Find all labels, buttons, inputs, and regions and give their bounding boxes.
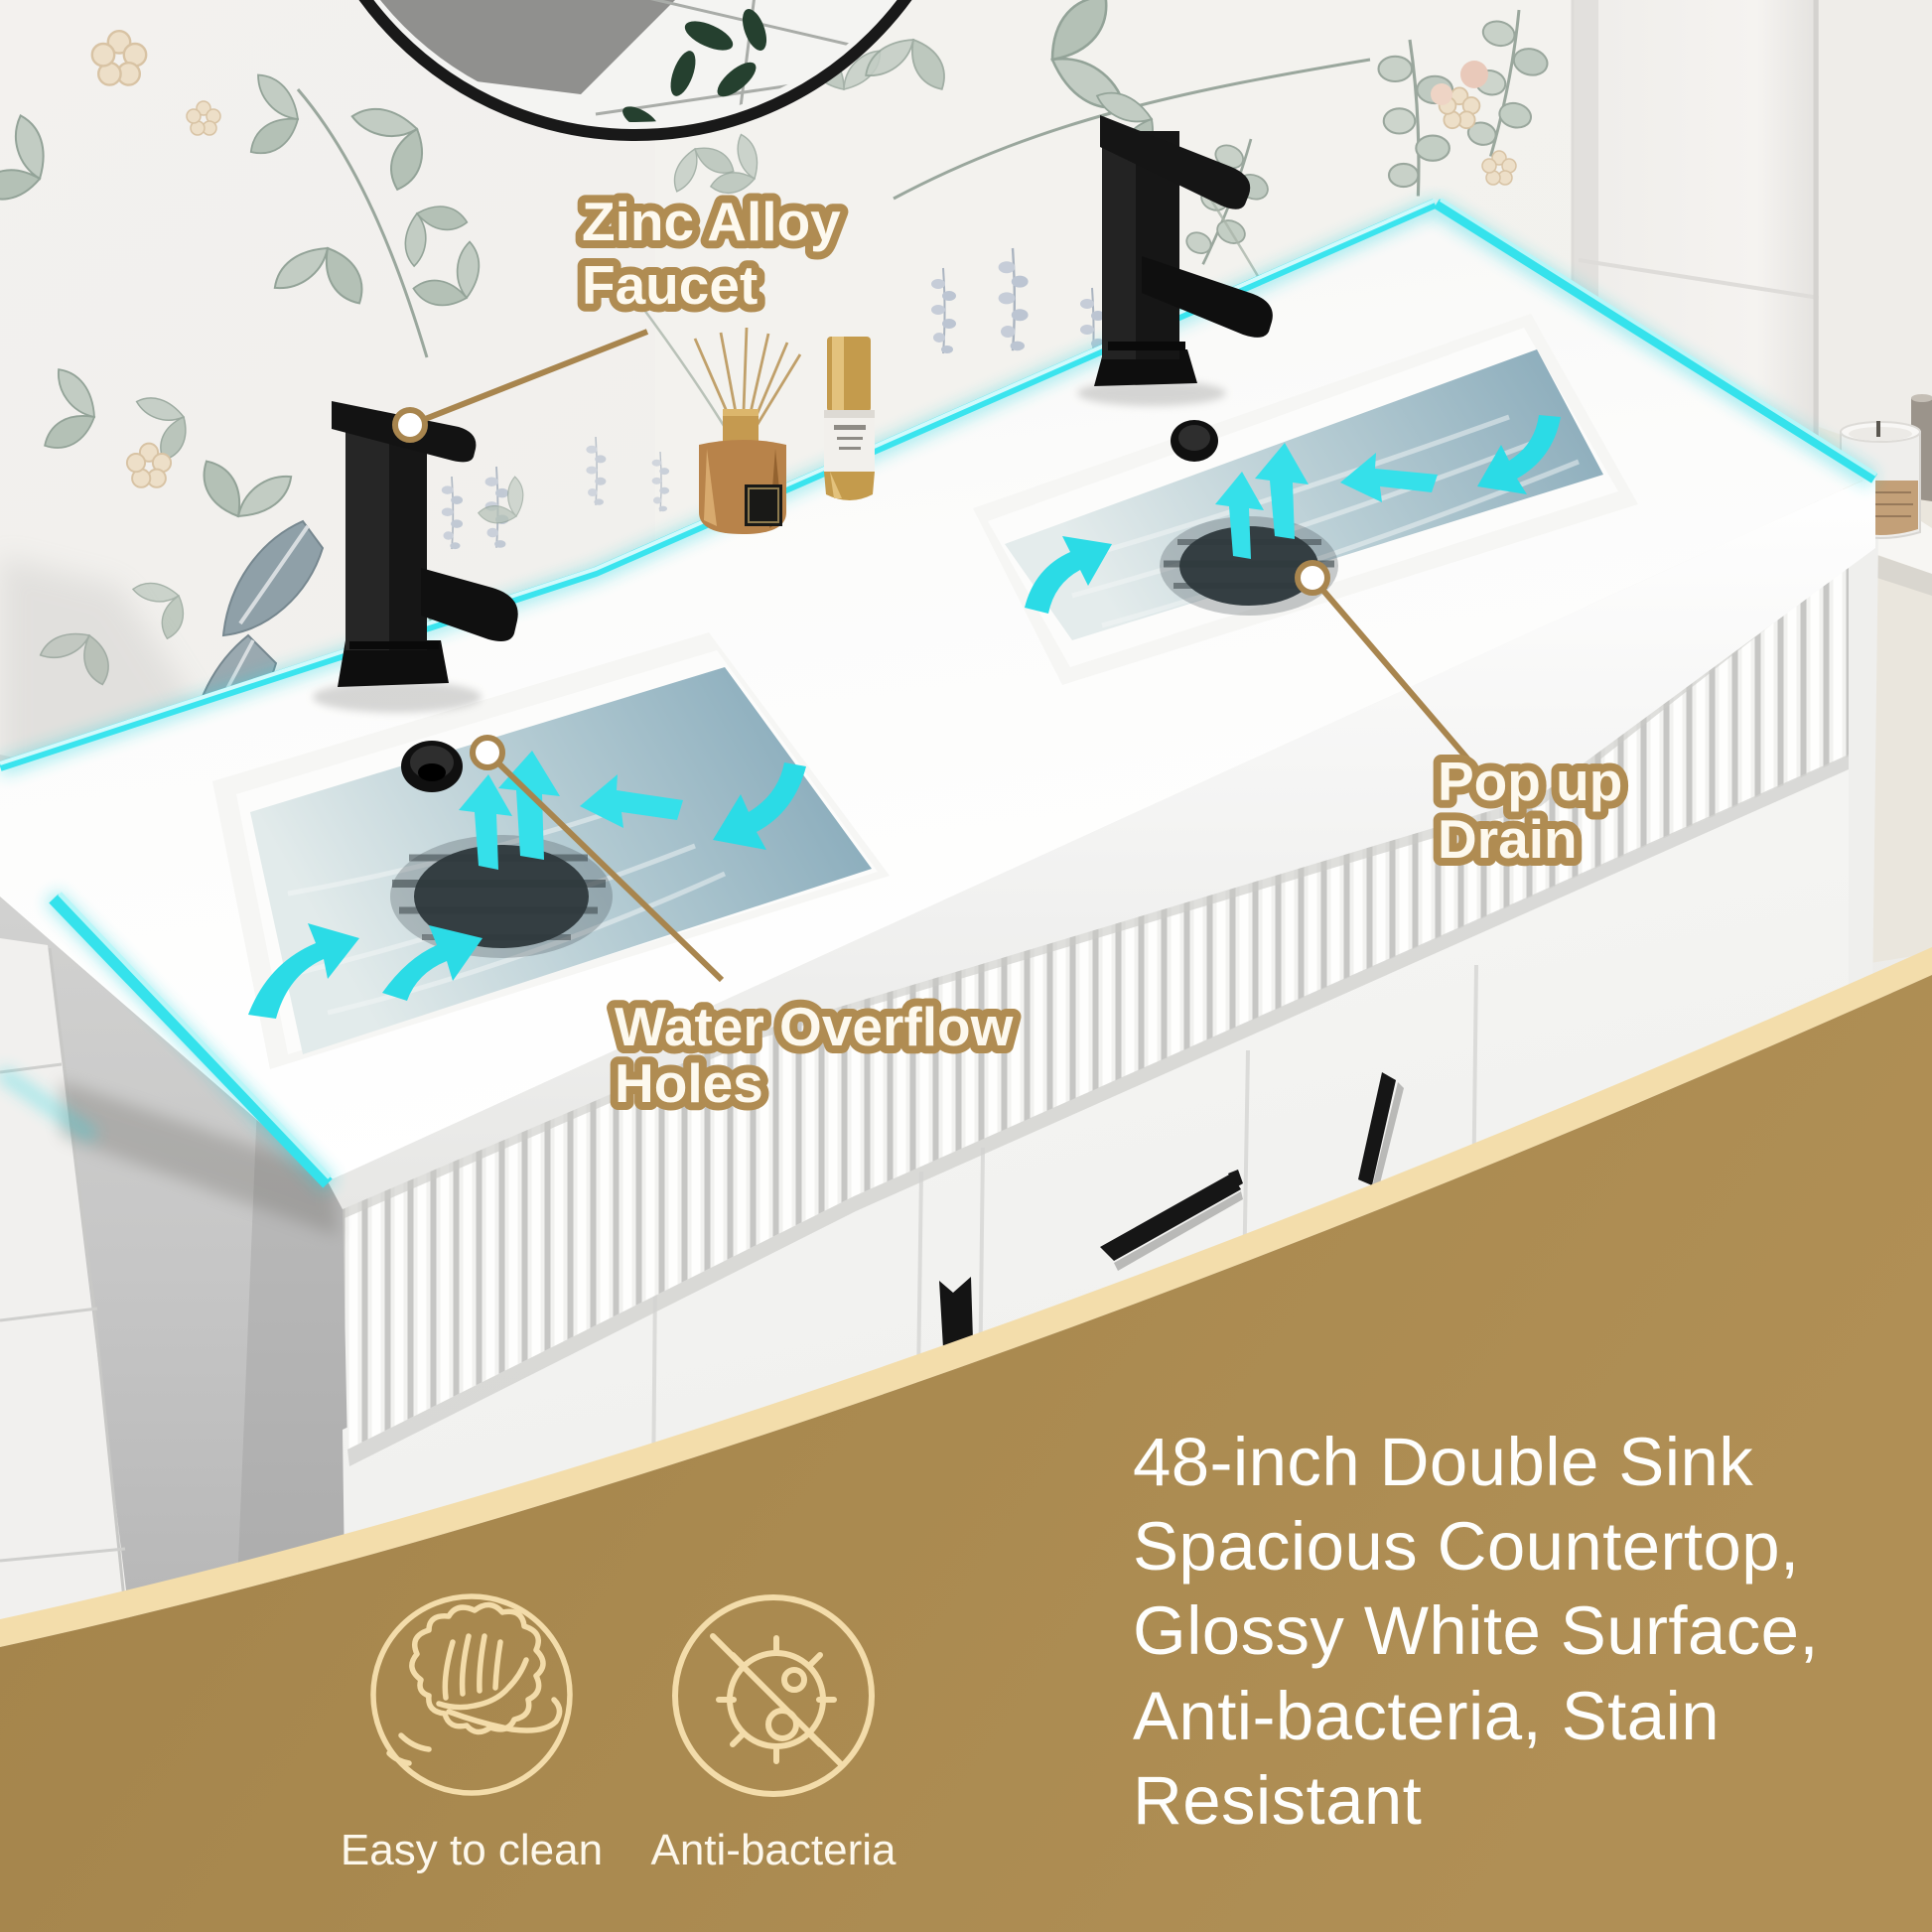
svg-text:Resistant: Resistant (1133, 1762, 1422, 1839)
svg-text:48-inch Double Sink: 48-inch Double Sink (1133, 1424, 1753, 1500)
svg-text:Water Overflow: Water Overflow (615, 996, 1014, 1057)
svg-text:Faucet: Faucet (582, 254, 758, 316)
svg-text:Glossy White Surface,: Glossy White Surface, (1133, 1592, 1819, 1669)
svg-text:Anti-bacteria: Anti-bacteria (650, 1826, 897, 1874)
svg-text:Anti-bacteria, Stain: Anti-bacteria, Stain (1133, 1678, 1720, 1754)
svg-text:Easy to clean: Easy to clean (341, 1826, 603, 1874)
svg-text:Drain: Drain (1438, 808, 1578, 870)
svg-text:Holes: Holes (615, 1052, 763, 1114)
svg-text:Pop up: Pop up (1438, 751, 1622, 812)
svg-text:Zinc Alloy: Zinc Alloy (582, 191, 841, 252)
svg-text:Spacious Countertop,: Spacious Countertop, (1133, 1508, 1800, 1585)
